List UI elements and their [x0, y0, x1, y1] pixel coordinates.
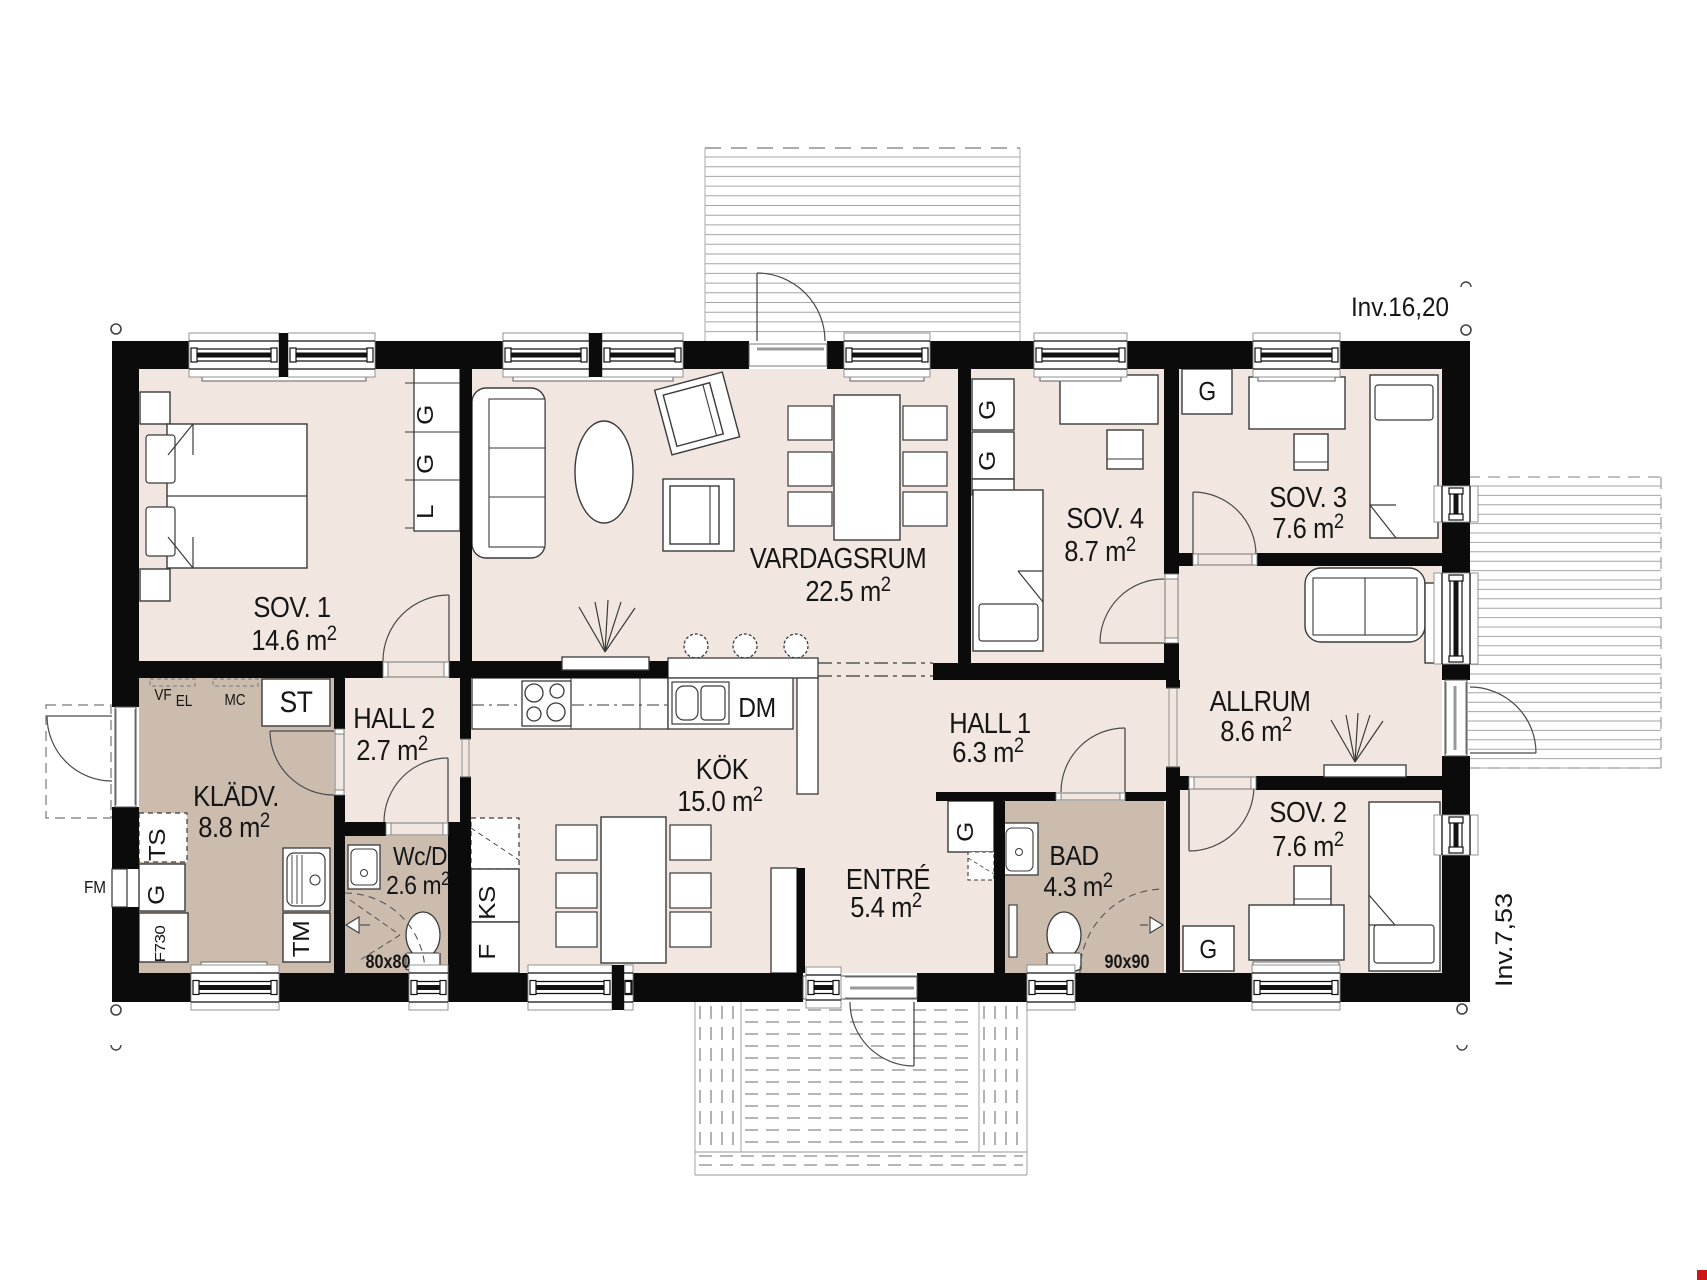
svg-text:EL: EL	[176, 693, 193, 710]
svg-text:22.5 m2: 22.5 m2	[805, 573, 890, 607]
svg-text:90x90: 90x90	[1105, 951, 1150, 973]
svg-text:8.7 m2: 8.7 m2	[1064, 533, 1135, 567]
svg-text:F730: F730	[153, 925, 169, 962]
svg-text:G: G	[413, 405, 438, 425]
svg-text:5.4 m2: 5.4 m2	[850, 889, 921, 923]
svg-text:KS: KS	[475, 886, 500, 920]
svg-text:7.6 m2: 7.6 m2	[1272, 828, 1343, 862]
svg-text:Inv.16,20: Inv.16,20	[1351, 293, 1449, 322]
svg-text:8.8 m2: 8.8 m2	[198, 809, 269, 843]
svg-text:VF: VF	[154, 687, 171, 704]
svg-text:G: G	[953, 822, 978, 842]
svg-text:ALLRUM: ALLRUM	[1210, 684, 1311, 717]
svg-text:2.6 m2: 2.6 m2	[386, 868, 450, 900]
svg-text:14.6 m2: 14.6 m2	[251, 622, 336, 656]
svg-text:F: F	[475, 944, 500, 959]
svg-text:HALL 2: HALL 2	[353, 701, 434, 734]
svg-text:BAD: BAD	[1049, 840, 1098, 872]
svg-text:TS: TS	[145, 829, 170, 861]
svg-text:G: G	[1199, 936, 1216, 965]
svg-text:6.3 m2: 6.3 m2	[952, 734, 1023, 768]
svg-text:8.6 m2: 8.6 m2	[1220, 713, 1291, 747]
svg-text:SOV. 3: SOV. 3	[1269, 480, 1346, 513]
svg-text:FM: FM	[84, 877, 106, 897]
svg-text:7.6 m2: 7.6 m2	[1272, 510, 1343, 544]
svg-text:G: G	[413, 454, 438, 474]
svg-text:G: G	[144, 885, 169, 905]
svg-text:80x80: 80x80	[366, 951, 411, 973]
svg-text:MC: MC	[224, 692, 245, 709]
svg-text:KÖK: KÖK	[696, 752, 749, 785]
svg-text:TM: TM	[289, 921, 314, 958]
svg-text:VARDAGSRUM: VARDAGSRUM	[750, 541, 927, 574]
svg-text:G: G	[1198, 378, 1215, 407]
svg-text:DM: DM	[738, 692, 775, 724]
svg-text:Inv.7,53: Inv.7,53	[1491, 893, 1517, 987]
svg-text:SOV. 2: SOV. 2	[1269, 795, 1346, 828]
svg-text:G: G	[975, 400, 1000, 420]
svg-text:2.7 m2: 2.7 m2	[356, 732, 427, 766]
svg-text:G: G	[975, 451, 1000, 471]
svg-text:L: L	[413, 505, 438, 519]
svg-text:15.0 m2: 15.0 m2	[677, 783, 762, 817]
svg-text:SOV. 4: SOV. 4	[1066, 501, 1143, 534]
svg-text:KLÄDV.: KLÄDV.	[193, 779, 279, 812]
svg-text:Wc/D: Wc/D	[393, 843, 447, 872]
svg-text:4.3 m2: 4.3 m2	[1043, 869, 1112, 902]
svg-text:SOV. 1: SOV. 1	[253, 590, 330, 623]
svg-text:ST: ST	[280, 684, 313, 718]
